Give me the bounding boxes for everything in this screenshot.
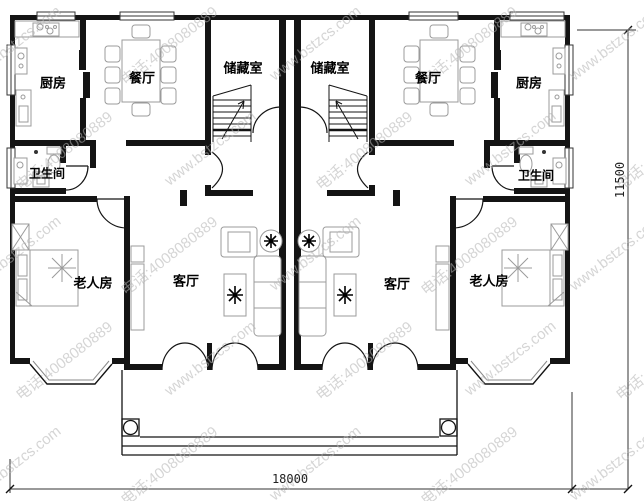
bay-window-right bbox=[468, 361, 550, 384]
porch-column-right bbox=[440, 419, 457, 436]
room-label-bath-left: 卫生间 bbox=[29, 165, 65, 182]
dimension-height-label: 11500 bbox=[613, 162, 627, 198]
bedroom-right-furniture bbox=[502, 224, 568, 306]
staircase-right bbox=[329, 85, 367, 142]
living-left-furniture bbox=[131, 227, 282, 336]
living-right-furniture bbox=[298, 227, 449, 336]
room-label-living-right: 客厅 bbox=[384, 274, 410, 293]
bay-window-left bbox=[30, 361, 112, 384]
room-label-storage-right: 储藏室 bbox=[310, 58, 349, 77]
room-label-kitchen-right: 厨房 bbox=[516, 73, 542, 92]
porch-and-steps bbox=[122, 370, 457, 455]
room-label-kitchen-left: 厨房 bbox=[40, 73, 66, 92]
room-label-elder-left: 老人房 bbox=[73, 273, 112, 292]
staircase-left bbox=[213, 85, 251, 142]
porch-column-left bbox=[122, 419, 139, 436]
dimension-width-label: 18000 bbox=[272, 472, 308, 486]
room-label-dining-left: 餐厅 bbox=[129, 68, 155, 87]
room-label-elder-right: 老人房 bbox=[469, 271, 508, 290]
room-label-bath-right: 卫生间 bbox=[518, 167, 554, 184]
floor-plan: www.bstzcs.com电话:4008080889www.bstzcs.co… bbox=[0, 0, 644, 501]
room-label-storage-left: 储藏室 bbox=[223, 58, 262, 77]
bedroom-left-furniture bbox=[12, 224, 78, 306]
walls-layer bbox=[10, 15, 570, 370]
room-label-living-left: 客厅 bbox=[173, 271, 199, 290]
room-label-dining-right: 餐厅 bbox=[415, 68, 441, 87]
